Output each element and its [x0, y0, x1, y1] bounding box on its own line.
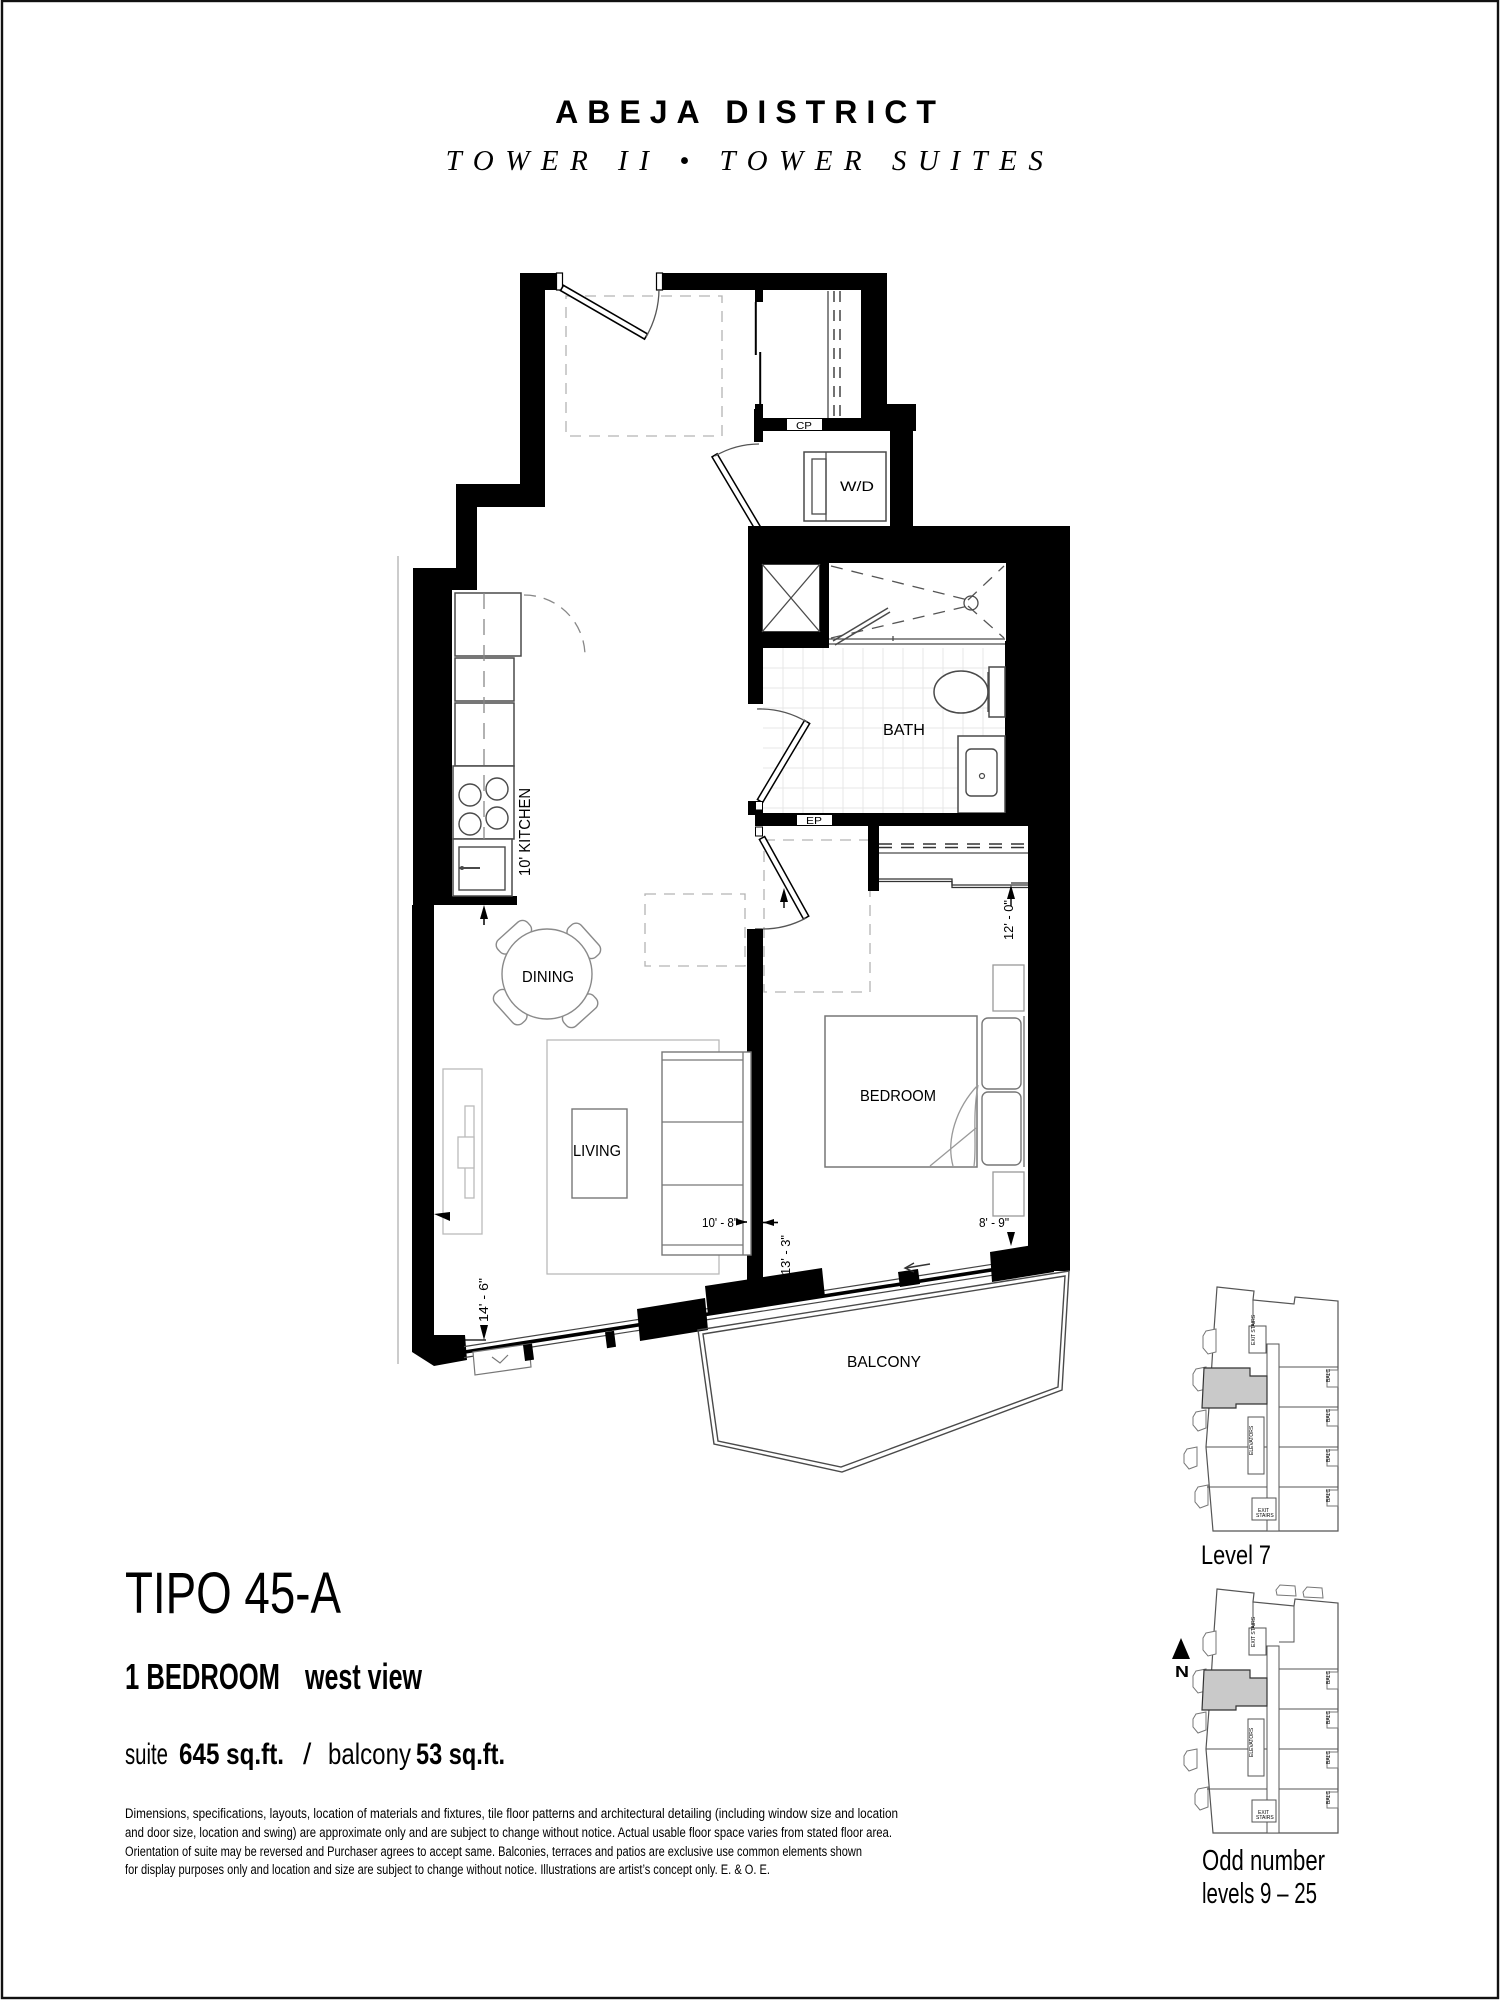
svg-text:ELEVATORS: ELEVATORS [1249, 1425, 1255, 1455]
svg-text:/: / [303, 1738, 312, 1771]
svg-text:53 sq.ft.: 53 sq.ft. [416, 1738, 505, 1771]
svg-text:12' - 0": 12' - 0" [1001, 900, 1016, 940]
svg-text:BALC: BALC [1326, 1791, 1332, 1804]
svg-text:Dimensions, specifications, la: Dimensions, specifications, layouts, loc… [125, 1806, 898, 1821]
svg-text:N: N [1175, 1664, 1189, 1681]
svg-text:BALC: BALC [1326, 1711, 1332, 1724]
svg-text:BALC: BALC [1326, 1449, 1332, 1462]
svg-text:BALC: BALC [1326, 1369, 1332, 1382]
svg-text:8' - 9": 8' - 9" [979, 1215, 1009, 1230]
svg-text:14' - 6": 14' - 6" [476, 1278, 491, 1322]
svg-text:EXIT STAIRS: EXIT STAIRS [1251, 1616, 1257, 1647]
svg-text:BATH: BATH [883, 722, 925, 739]
svg-text:EP: EP [806, 816, 822, 827]
svg-text:BALC: BALC [1326, 1489, 1332, 1502]
svg-text:13' - 3": 13' - 3" [778, 1235, 793, 1275]
svg-text:Orientation of suite may be re: Orientation of suite may be reversed and… [125, 1844, 862, 1859]
svg-text:BALC: BALC [1326, 1751, 1332, 1764]
svg-text:Level 7: Level 7 [1201, 1540, 1271, 1570]
svg-text:TIPO 45-A: TIPO 45-A [125, 1561, 341, 1626]
svg-text:645 sq.ft.: 645 sq.ft. [179, 1738, 284, 1771]
svg-text:STAIRS: STAIRS [1256, 1815, 1274, 1821]
svg-text:10' KITCHEN: 10' KITCHEN [517, 788, 534, 876]
svg-text:and door size, location and sw: and door size, location and swing) are a… [125, 1825, 892, 1840]
svg-text:1 BEDROOM: 1 BEDROOM [125, 1656, 280, 1697]
svg-text:STAIRS: STAIRS [1256, 1513, 1274, 1519]
svg-text:LIVING: LIVING [573, 1143, 621, 1160]
svg-text:W/D: W/D [840, 478, 874, 494]
svg-text:10' - 8": 10' - 8" [702, 1215, 738, 1230]
svg-text:west view: west view [304, 1656, 422, 1697]
svg-text:Odd number: Odd number [1202, 1845, 1325, 1877]
svg-text:suite: suite [125, 1738, 168, 1771]
svg-text:ELEVATORS: ELEVATORS [1249, 1727, 1255, 1757]
svg-text:levels 9 – 25: levels 9 – 25 [1202, 1878, 1317, 1910]
svg-text:EXIT STAIRS: EXIT STAIRS [1251, 1314, 1257, 1345]
svg-text:for display purposes only and: for display purposes only and location a… [125, 1862, 770, 1877]
svg-text:BALCONY: BALCONY [847, 1354, 921, 1371]
svg-text:BEDROOM: BEDROOM [860, 1088, 936, 1105]
svg-text:TOWER II • TOWER SUITES: TOWER II • TOWER SUITES [446, 145, 1055, 177]
svg-text:balcony: balcony [328, 1738, 411, 1771]
svg-text:DINING: DINING [522, 969, 574, 986]
svg-text:BALC: BALC [1326, 1409, 1332, 1422]
svg-text:ABEJA DISTRICT: ABEJA DISTRICT [555, 94, 945, 130]
svg-text:BALC: BALC [1326, 1671, 1332, 1684]
svg-text:CP: CP [796, 421, 812, 432]
